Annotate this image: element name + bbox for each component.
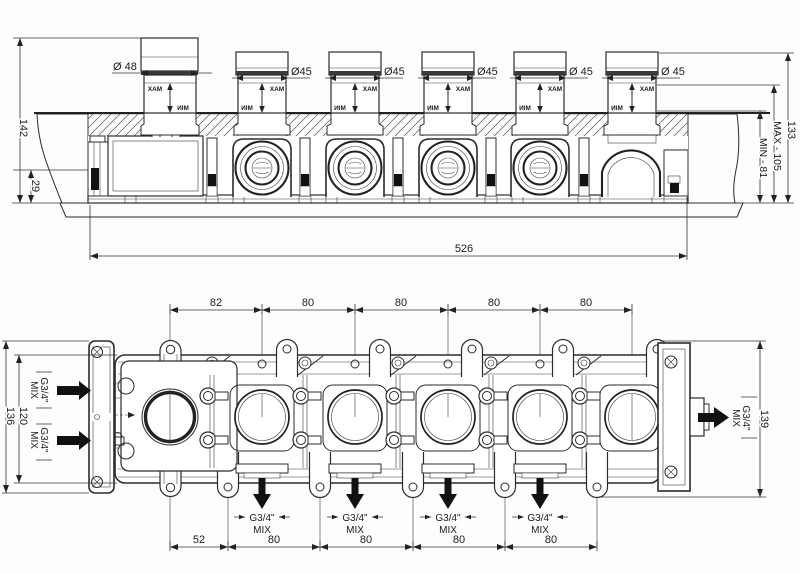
divider-post [486,138,496,196]
left-inlets: G3/4" MIX G3/4" MIX [28,372,91,460]
dim-max105-label: MAX - 105 [771,121,783,171]
dia-label-knob6: Ø 45 [661,66,685,78]
section-view: MAX MIN MAX MIN MAX MIN [12,38,797,260]
divider-post [393,138,403,196]
wall-right-block [688,114,739,203]
bottom-outlet-labels: G3/4" MIX G3/4" MIX G3/4" MIX G3/4" MIX [234,513,568,536]
wall-left-block [37,114,88,203]
dia-label-knob1: Ø 48 [113,61,137,73]
dim-80-label: 80 [453,534,465,546]
knob-max-label: MAX [547,86,562,93]
divider-post [207,138,217,196]
outlet-arrow [714,407,729,428]
knob-max-label: MAX [455,86,470,93]
outlet-size-label: G3/4" [435,513,461,524]
dim-29-label: 29 [29,180,41,192]
knob-max-label: MAX [147,86,162,93]
plan-top-dims: 82 80 80 80 80 [170,297,632,314]
dia-label-knob3: Ø45 [384,66,405,78]
knob-min-label: MIN [334,105,346,112]
dim-80-label: 80 [268,534,280,546]
dim-136-label: 136 [4,407,16,425]
dim-min81-label: MIN - 81 [757,138,769,178]
dim-133-label: 133 [785,121,797,139]
knob-2: MAX MIN [234,52,290,135]
knob-4: MAX MIN [420,52,476,135]
knob-1: MAX MIN [141,38,199,135]
technical-drawing-page: MAX MIN MAX MIN MAX MIN [0,0,800,573]
knob-5: MAX MIN [512,52,568,135]
dim-82-label: 82 [210,297,222,309]
inlet-type-label: MIX [28,381,39,399]
divider-post [300,138,310,196]
divider-post [579,138,589,196]
down-arrow [253,494,271,509]
down-arrow [346,494,364,509]
dim-80-label: 80 [302,297,314,309]
valve-chamber-2 [233,139,291,197]
dim-80-label: 80 [360,534,372,546]
down-arrow [439,494,457,509]
knob-min-label: MIN [427,105,439,112]
dim-80-label: 80 [488,297,500,309]
dim-142-label: 142 [17,119,29,137]
right-outlet: G3/4" MIX [698,397,757,438]
valve-chamber-4 [419,139,477,197]
knob-3: MAX MIN [327,52,383,135]
knob-max-label: MAX [269,86,284,93]
dia-label-knob2: Ø45 [291,66,312,78]
dim-526-label: 526 [455,243,473,255]
dia-label-knob4: Ø45 [477,66,498,78]
dim-139-label: 139 [758,410,770,428]
plan-view: G3/4" MIX G3/4" MIX G3/4" MIX G3/4" MIX … [2,297,770,551]
outlet-size-label: G3/4" [527,513,553,524]
valve-chamber-3 [326,139,384,197]
dim-80-label: 80 [545,534,557,546]
end-bolt [670,183,679,193]
knob-max-label: MAX [362,86,377,93]
down-arrow [531,494,549,509]
mixer-valve-drawing: MAX MIN MAX MIN MAX MIN [0,0,800,573]
outlet-size-label: G3/4" [342,513,368,524]
anchor-seal [91,168,99,190]
body-left-end [88,136,108,196]
knob-max-label: MAX [639,86,654,93]
outlet-port [422,464,474,509]
outlet-type-label: MIX [730,409,741,427]
plan-bottom-dims: 52 80 80 80 80 [170,534,597,551]
dim-80-label: 80 [395,297,407,309]
width-dim: 526 [90,197,687,260]
knob-min-label: MIN [611,105,623,112]
outlet-port [329,464,381,509]
wall-bottom-band [60,203,743,217]
knob-min-label: MIN [177,105,189,112]
knob-min-label: MIN [519,105,531,112]
knob-6: MAX MIN [604,52,660,135]
dim-120-label: 120 [17,407,29,425]
dim-52-label: 52 [193,534,205,546]
inlet-type-label: MIX [28,431,39,449]
outlet-port [236,464,288,509]
dim-80-label: 80 [580,297,592,309]
dia-label-knob5: Ø 45 [569,66,593,78]
outlet-size-label: G3/4" [249,513,275,524]
knob-min-label: MIN [241,105,253,112]
valve-chamber-5 [511,139,569,197]
outlet-port [514,464,566,509]
